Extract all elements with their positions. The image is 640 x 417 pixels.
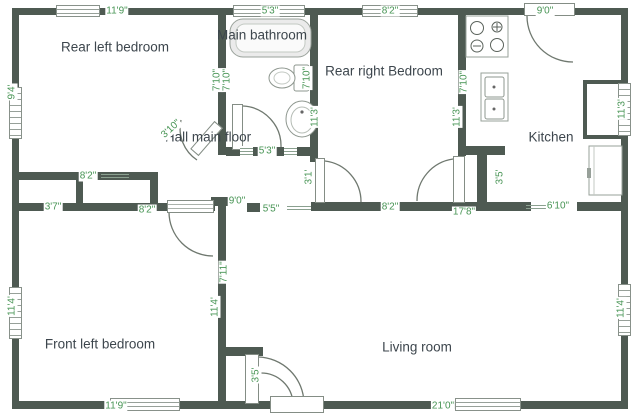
dimension-label: 7'10": [459, 70, 470, 94]
dimension-label: 11'3': [310, 106, 321, 128]
door-threshold: [270, 396, 324, 413]
dimension-label: 3'5': [251, 367, 262, 384]
room-label: Rear left bedroom: [61, 40, 169, 55]
dimension-label: 11'4': [7, 295, 18, 317]
dimension-label: 8'2": [138, 205, 157, 216]
leader-ticks: [240, 146, 253, 156]
leader-ticks: [284, 146, 297, 156]
door-arc: [417, 159, 453, 201]
room-label: Rear right Bedroom: [325, 64, 443, 79]
door-arc: [527, 16, 573, 62]
dimension-label: 17'8": [452, 207, 476, 218]
dimension-label: 8'2": [381, 202, 400, 213]
door-leaf: [315, 158, 325, 203]
dimension-label: 11'9": [104, 401, 127, 412]
door-leaf: [453, 156, 465, 203]
floor-plan: Rear left bedroomMain bathroomRear right…: [0, 0, 640, 417]
stove-icon: [466, 16, 508, 57]
dimension-label: 11'4': [616, 297, 627, 319]
dimension-label: 5'3": [258, 146, 277, 157]
dimension-label: 3'1': [304, 169, 315, 186]
room-label: Main bathroom: [217, 28, 307, 43]
dimension-label: 9'0": [536, 6, 555, 17]
dimension-label: 8'2": [79, 171, 98, 182]
dimension-label: 5'5": [262, 204, 281, 215]
dimension-label: 9'4': [7, 84, 18, 101]
door-arc: [169, 212, 213, 256]
dimension-label: 7'11": [219, 260, 230, 283]
leader-line: [287, 206, 311, 210]
room-label: Kitchen: [528, 130, 573, 145]
dimension-label: 6'10": [546, 201, 570, 212]
dimension-label: 9'0": [228, 196, 247, 207]
door-arc: [325, 161, 361, 202]
dimension-label: 11'9": [105, 6, 128, 17]
door-leaf: [167, 200, 214, 213]
refrigerator-counter-icon: [587, 146, 622, 195]
dimension-label: 21'0": [431, 401, 455, 412]
dimension-label: 11'3': [452, 106, 463, 128]
dimension-label: 11'4': [210, 296, 221, 318]
dimension-label: 11'3': [617, 98, 628, 120]
dimension-label: 7'10": [302, 66, 313, 90]
room-label: Front left bedroom: [45, 337, 155, 352]
dimension-label: 8'2": [381, 6, 400, 17]
room-label: Living room: [382, 340, 452, 355]
leader-line: [101, 174, 129, 178]
dimension-label: 3'5': [495, 169, 506, 186]
dimension-label: 5'3": [261, 6, 280, 17]
kitchen-sink-icon: [481, 73, 508, 121]
room-label: Hall main floor: [165, 130, 251, 145]
dimension-label: 3'7": [44, 202, 63, 213]
dimension-label: 7'10": [222, 68, 233, 92]
leader-line: [526, 205, 548, 209]
